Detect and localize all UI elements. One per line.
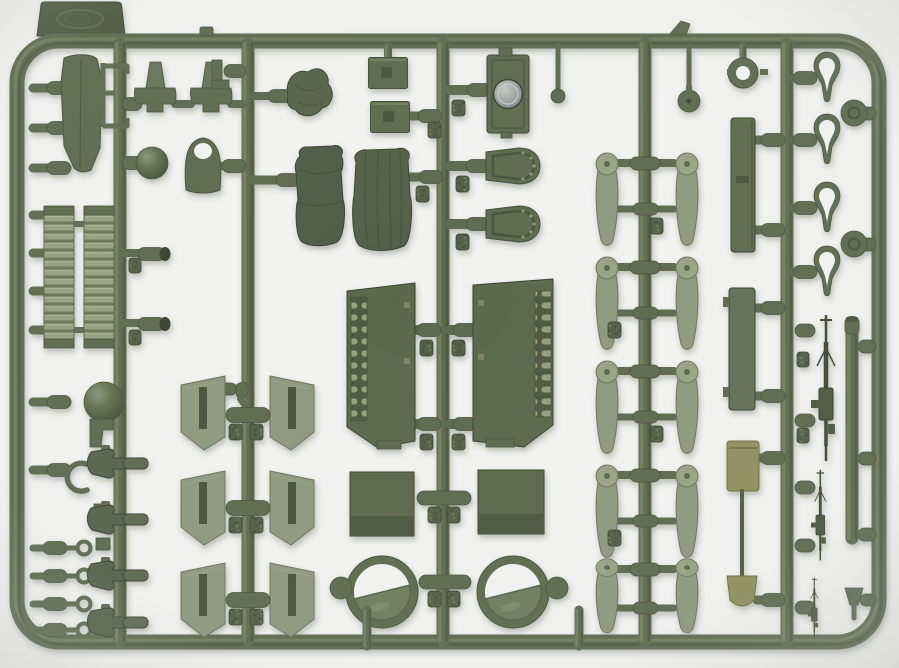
- photo-canvas: [0, 0, 899, 668]
- sprue-photo: [0, 0, 899, 668]
- photo-vignette: [0, 0, 899, 668]
